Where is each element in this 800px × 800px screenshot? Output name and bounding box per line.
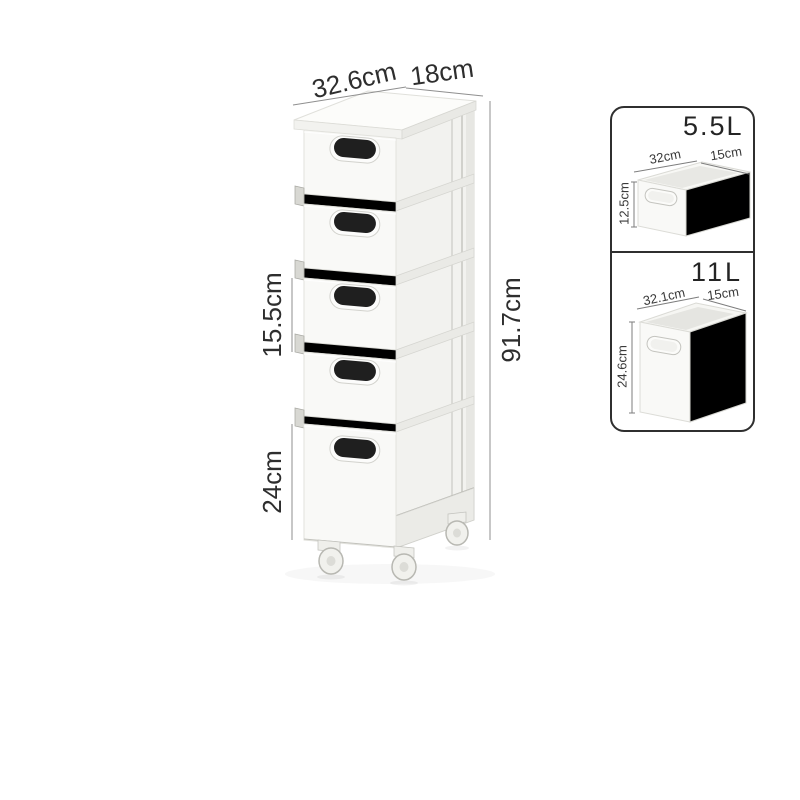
product-dimension-diagram: 32.6cm 18cm 15.5cm 91.7cm 24cm 5.5L 32cm…	[0, 0, 800, 800]
drawer-bottom-large	[304, 424, 396, 548]
box1-height-label: 12.5cm	[617, 179, 632, 229]
drawer-1	[295, 130, 396, 212]
drawer-3-handle	[329, 283, 381, 312]
box2-height-label: 24.6cm	[615, 340, 630, 394]
drawer-4	[295, 352, 396, 432]
drawer-2	[295, 204, 396, 286]
dim-label-bottom-height: 24cm	[258, 447, 286, 517]
floor-shadow	[285, 564, 495, 584]
drawer-1-handle	[329, 135, 381, 164]
drawer-3	[295, 278, 396, 360]
volume-label-5-5l: 5.5L	[683, 112, 744, 141]
cart-illustration	[294, 91, 476, 586]
dim-label-drawer-height: 15.5cm	[258, 270, 286, 360]
drawer-bottom-handle	[329, 435, 381, 464]
drawer-2-handle	[329, 209, 381, 238]
dim-label-total-height: 91.7cm	[497, 272, 525, 368]
volume-label-11l: 11L	[691, 258, 743, 287]
cart-back-post	[466, 109, 474, 523]
drawer-4-handle	[329, 357, 381, 386]
